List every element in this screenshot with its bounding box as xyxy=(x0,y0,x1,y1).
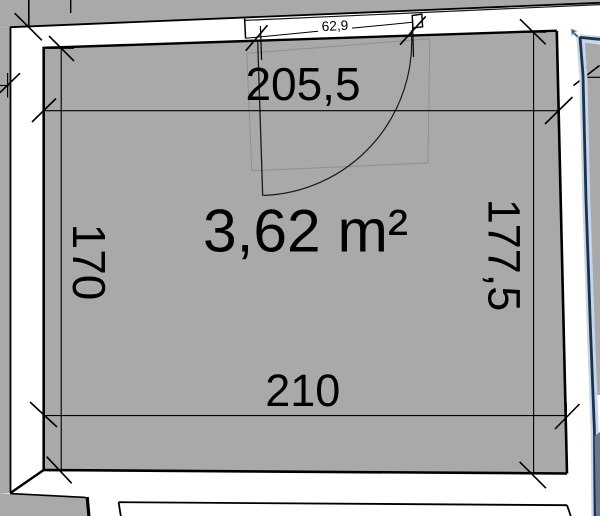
svg-text:170: 170 xyxy=(63,224,115,301)
svg-text:177,5: 177,5 xyxy=(478,199,529,312)
svg-text:3,62 m²: 3,62 m² xyxy=(203,197,408,265)
svg-text:210: 210 xyxy=(265,365,340,416)
svg-text:62,9: 62,9 xyxy=(321,18,348,34)
svg-text:205,5: 205,5 xyxy=(245,58,360,110)
